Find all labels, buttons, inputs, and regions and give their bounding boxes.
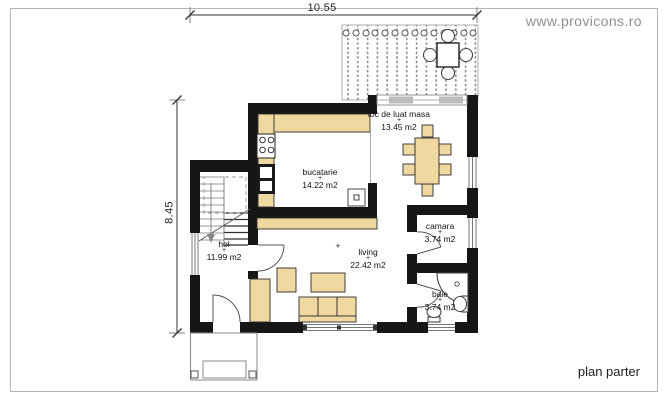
- window-baie: [428, 322, 455, 333]
- dining-chair: [439, 164, 451, 175]
- room-label-dining: loc de luat masa + 13.45 m2: [344, 110, 454, 132]
- stair-break-line: [199, 209, 250, 241]
- sofa: [299, 297, 356, 322]
- terrace-chair: [424, 49, 437, 62]
- entrance-door: [213, 295, 240, 322]
- floor-plan-page: 10.55 8.45 www.provicons.ro plan parter …: [0, 0, 668, 400]
- porch-post: [249, 371, 256, 378]
- dining-chair: [422, 184, 433, 196]
- entrance-porch: [191, 333, 258, 380]
- room-label-camara: camara + 3.74 m2: [385, 222, 495, 244]
- porch-step: [203, 361, 246, 378]
- room-label-hol: hol + 11.99 m2: [169, 240, 279, 262]
- wardrobe: [250, 279, 270, 322]
- kitchen-appliance: [348, 189, 365, 206]
- terrace-glass-wall: [377, 95, 467, 105]
- room-area: 13.45 m2: [344, 123, 454, 132]
- dining-set: [403, 125, 451, 196]
- porch-post: [191, 371, 198, 378]
- living-furniture: [250, 268, 356, 322]
- dimension-left-label: 8.45: [164, 189, 177, 237]
- stove-icon: [257, 134, 275, 158]
- room-label-living: living + 22.42 m2: [313, 248, 423, 270]
- dining-table: [415, 138, 439, 184]
- window-living: [303, 322, 377, 333]
- terrace: [342, 25, 478, 100]
- plan-title: plan parter: [540, 364, 640, 379]
- watermark: www.provicons.ro: [480, 13, 642, 29]
- floor-plan-drawing: [0, 0, 668, 400]
- terrace-chair: [460, 49, 473, 62]
- dining-chair: [439, 144, 451, 155]
- room-area: 14.22 m2: [265, 181, 375, 190]
- terrace-chair: [442, 67, 455, 80]
- room-label-bucatarie: bucatarie + 14.22 m2: [265, 168, 375, 190]
- living-center-mark: +: [333, 241, 343, 251]
- room-area: 3.74 m2: [385, 303, 495, 312]
- page-frame: [11, 9, 658, 392]
- dining-chair: [403, 144, 415, 155]
- terrace-table: [437, 43, 459, 67]
- room-area: 22.42 m2: [313, 261, 423, 270]
- staircase: [199, 177, 250, 246]
- coffee-table: [311, 273, 345, 292]
- dimension-top-label: 10.55: [292, 2, 352, 14]
- window-dining: [467, 157, 478, 188]
- terrace-chair: [442, 30, 455, 43]
- room-label-baie: baie + 3.74 m2: [385, 290, 495, 312]
- dining-chair: [403, 164, 415, 175]
- bar-counter: [257, 218, 377, 229]
- room-area: 3.74 m2: [385, 235, 495, 244]
- armchair: [277, 268, 296, 292]
- room-area: 11.99 m2: [169, 253, 279, 262]
